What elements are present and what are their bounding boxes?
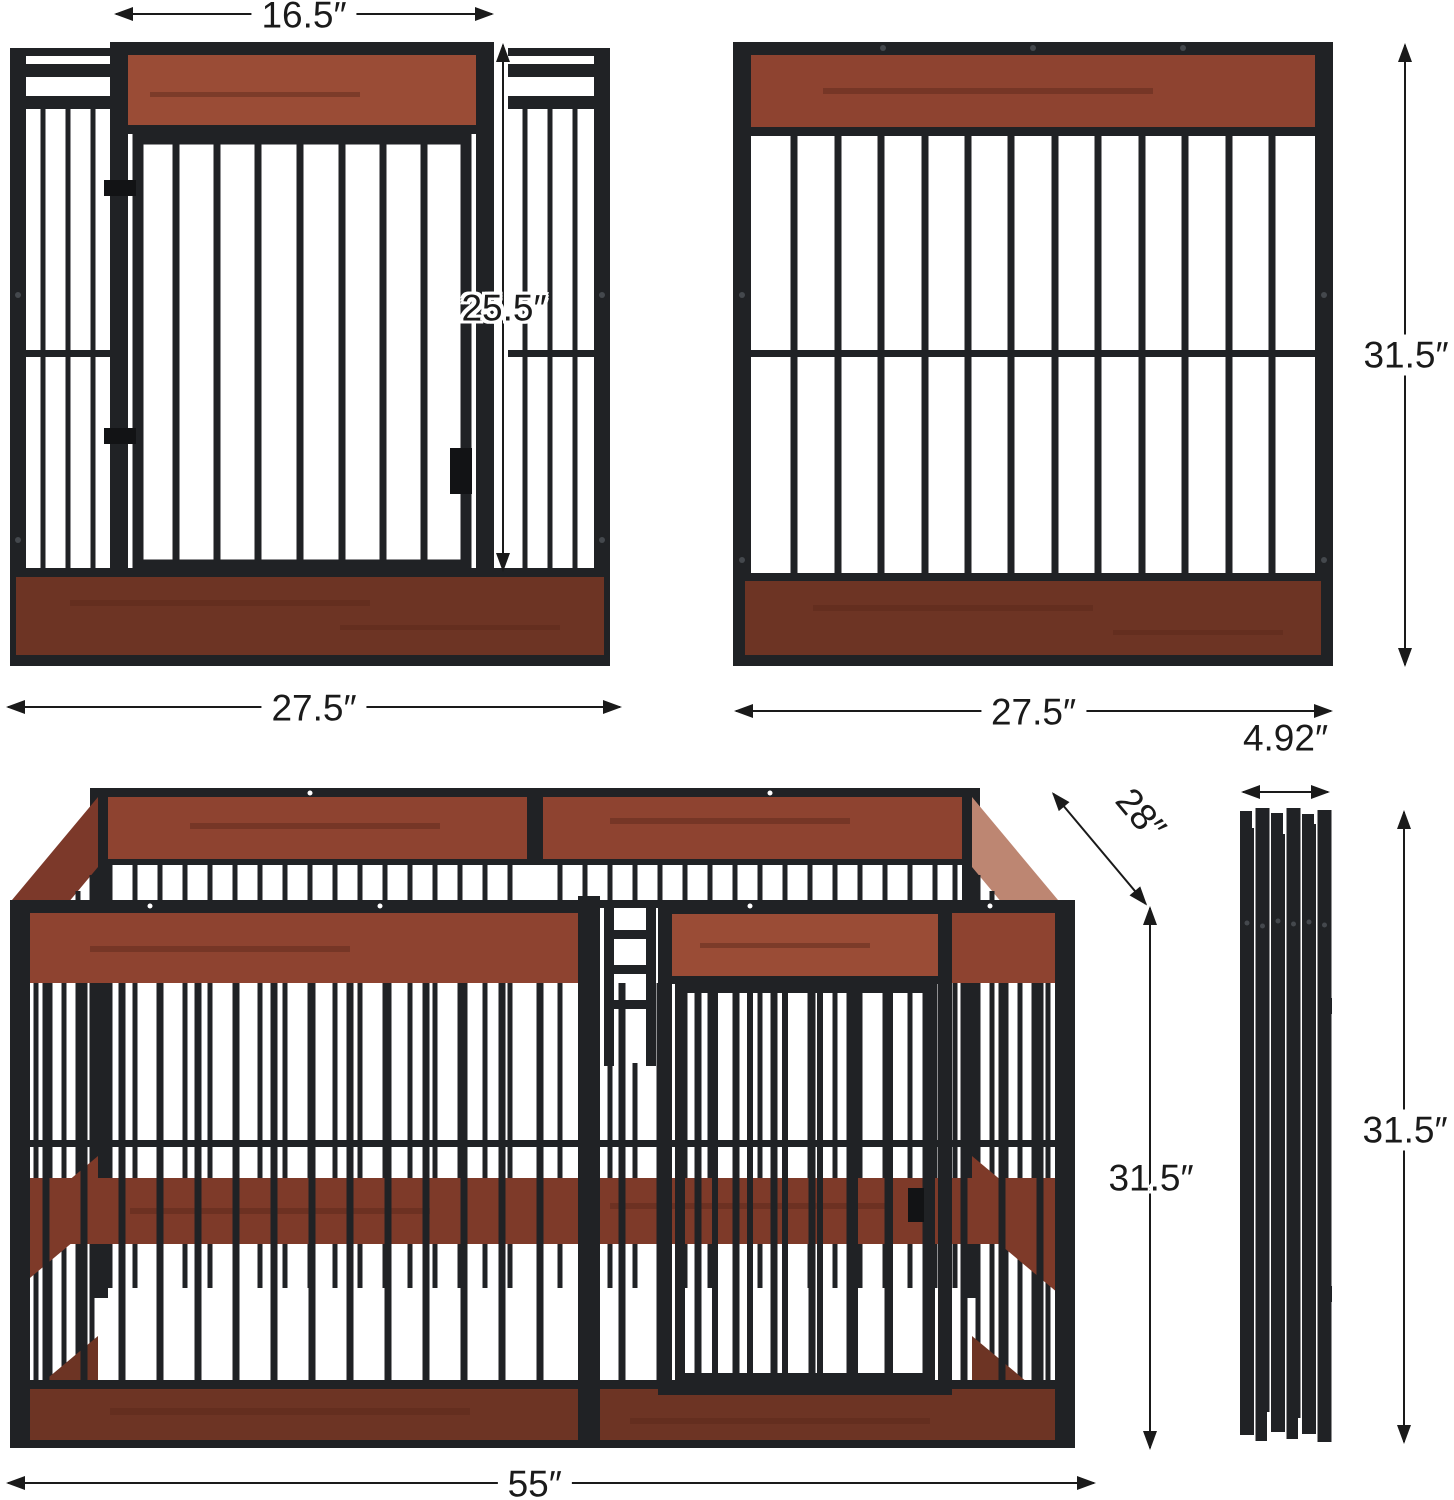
dimension-front-door-height: 25.5″ (502, 45, 504, 570)
arrow-down-icon (1397, 1425, 1411, 1444)
arrow-right-icon (1077, 1476, 1096, 1490)
side-panel-view (733, 40, 1333, 668)
arrow-up-icon (1398, 43, 1412, 62)
arrow-down-icon (1143, 1431, 1157, 1450)
dimension-label: 4.92″ (1233, 718, 1338, 759)
folded-stack-view (1240, 808, 1332, 1448)
arrow-up-icon (1397, 810, 1411, 829)
dimension-label: 31.5″ (1352, 1110, 1454, 1151)
dimension-label: 55″ (498, 1464, 572, 1500)
dimension-side-panel-height: 31.5″ (1404, 45, 1406, 665)
dimension-label: 27.5″ (261, 688, 366, 729)
arrow-up-icon (496, 43, 510, 62)
dimension-label: 16.5″ (251, 0, 356, 36)
arrow-left-icon (734, 704, 753, 718)
folded-stack-illustration (1240, 808, 1332, 1448)
dimension-label: 31.5″ (1353, 335, 1454, 376)
front-panel-view (10, 40, 610, 668)
arrow-right-icon (1311, 785, 1330, 799)
assembled-pen-illustration (10, 788, 1075, 1448)
assembled-pen-view (10, 788, 1075, 1448)
side-panel-illustration (733, 40, 1333, 668)
arrow-right-icon (475, 7, 494, 21)
arrow-left-icon (6, 700, 25, 714)
dimension-label: 27.5″ (981, 692, 1086, 733)
dimension-front-panel-width: 27.5″ (8, 706, 620, 708)
dimension-folded-height: 31.5″ (1403, 812, 1405, 1442)
dimension-pen-width: 55″ (8, 1482, 1094, 1484)
arrow-up-icon (1143, 906, 1157, 925)
arrow-down-icon (1398, 648, 1412, 667)
product-dimension-diagram: 16.5″ 25.5″ 27.5″ 31.5″ 27.5″ 28″ 31.5″ (0, 0, 1454, 1500)
arrow-left-icon (6, 1476, 25, 1490)
dimension-front-door-width: 16.5″ (116, 13, 492, 15)
arrow-left-icon (114, 7, 133, 21)
dimension-label: 25.5″ (451, 287, 556, 328)
arrow-right-icon (1314, 704, 1333, 718)
dimension-label: 28″ (1101, 772, 1180, 855)
front-panel-illustration (10, 40, 610, 668)
dimension-label: 31.5″ (1098, 1158, 1203, 1199)
dimension-side-panel-width: 27.5″ (736, 710, 1331, 712)
arrow-right-icon (603, 700, 622, 714)
arrow-left-icon (1241, 785, 1260, 799)
arrow-down-icon (496, 553, 510, 572)
dimension-pen-height: 31.5″ (1149, 908, 1151, 1448)
dimension-folded-thickness: 4.92″ (1243, 791, 1328, 793)
